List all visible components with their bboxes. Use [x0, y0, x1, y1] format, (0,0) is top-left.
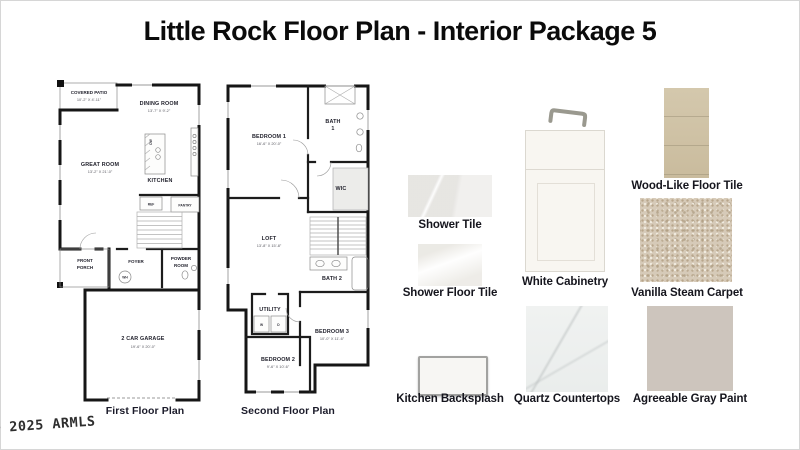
first-floor-plan-svg: COVERED PATIO 10'-2" X 4'-11" DW	[52, 70, 227, 405]
water-heater: WH	[119, 271, 131, 283]
ref-label: REF	[148, 203, 155, 207]
vanilla-carpet-label: Vanilla Steam Carpet	[617, 287, 757, 299]
shower-tile-label: Shower Tile	[380, 219, 520, 231]
loft-dims: 13'-8" X 15'-8"	[257, 243, 282, 248]
pantry: PANTRY	[171, 197, 199, 212]
first-floor-plan-drawing: COVERED PATIO 10'-2" X 4'-11" DW	[52, 70, 227, 405]
agreeable-gray-label: Agreeable Gray Paint	[620, 393, 760, 405]
loft-label: LOFT	[262, 236, 277, 242]
second-floor-walls	[228, 86, 368, 392]
quartz-countertops-swatch	[526, 306, 608, 392]
powder-room-label-1: POWDER	[171, 256, 192, 261]
second-floor-plan-svg: W D BEDROOM 1 16'-6" X 20'-0" BATH 1 WIC…	[221, 70, 373, 400]
kitchen-island: DW	[145, 134, 165, 174]
bedroom1-dims: 16'-6" X 20'-0"	[257, 141, 282, 146]
cabinet-handle-icon	[546, 105, 590, 130]
first-floor-caption: First Floor Plan	[75, 405, 215, 417]
wic-label: WIC	[336, 186, 347, 192]
kitchen-counter	[191, 128, 198, 176]
utility-label: UTILITY	[259, 307, 281, 313]
foyer-label: FOYER	[128, 259, 144, 264]
kitchen-label: KITCHEN	[147, 178, 172, 184]
shower-tile-swatch	[408, 175, 492, 217]
quartz-countertops-label: Quartz Countertops	[497, 393, 637, 405]
garage-label: 2 CAR GARAGE	[121, 336, 164, 342]
kitchen-backsplash-swatch	[418, 356, 488, 396]
bath2-fixtures	[310, 257, 368, 290]
shower-floor-tile-label: Shower Floor Tile	[380, 287, 520, 299]
first-floor-stairs	[137, 212, 182, 248]
page-title: Little Rock Floor Plan - Interior Packag…	[0, 16, 800, 47]
wood-floor-tile-label: Wood-Like Floor Tile	[617, 180, 757, 192]
cabinet-drawer-line	[526, 169, 604, 170]
dining-room-label: DINING ROOM	[140, 101, 179, 107]
white-cabinetry-label: White Cabinetry	[495, 276, 635, 288]
bedroom3-label: BEDROOM 3	[315, 329, 349, 335]
great-room-label: GREAT ROOM	[81, 162, 120, 168]
pantry-label: PANTRY	[178, 204, 192, 208]
agreeable-gray-swatch	[647, 306, 733, 391]
front-porch: FRONT PORCH	[60, 233, 109, 287]
refrigerator: REF	[140, 197, 162, 210]
wh-label: WH	[122, 276, 128, 280]
second-floor-caption: Second Floor Plan	[218, 405, 358, 417]
bedroom3-dims: 10'-0" X 11'-6"	[320, 336, 345, 341]
covered-patio-dims: 10'-2" X 4'-11"	[77, 97, 102, 102]
dining-room-dims: 13'-7" X 9'-2"	[148, 108, 171, 113]
bedroom2-dims: 9'-6" X 10'-6"	[267, 364, 290, 369]
first-floor-walls	[57, 85, 199, 400]
bath2-label: BATH 2	[322, 276, 342, 282]
covered-patio-room: COVERED PATIO 10'-2" X 4'-11"	[57, 80, 117, 110]
cabinet-door	[537, 183, 595, 261]
window-marks-2	[228, 86, 368, 392]
bath1-label-1: BATH	[325, 119, 340, 125]
armls-watermark: © 2025 ARMLS	[0, 413, 96, 436]
white-cabinetry-swatch	[525, 130, 605, 272]
powder-room-label-2: ROOM	[174, 263, 188, 268]
dishwasher-label: DW	[149, 138, 153, 144]
bedroom1-label: BEDROOM 1	[252, 134, 286, 140]
bath1-label-2: 1	[331, 126, 334, 132]
front-porch-label-1: FRONT	[77, 258, 93, 263]
second-floor-stairs	[310, 217, 366, 255]
washer-dryer: W D	[254, 316, 286, 332]
garage-dims: 19'-6" X 20'-0"	[131, 344, 156, 349]
second-floor-plan-drawing: W D BEDROOM 1 16'-6" X 20'-0" BATH 1 WIC…	[221, 70, 373, 400]
bedroom2-label: BEDROOM 2	[261, 357, 295, 363]
screenshot-root: { "title": "Little Rock Floor Plan - Int…	[0, 0, 800, 450]
covered-patio-label: COVERED PATIO	[71, 90, 108, 95]
vanilla-carpet-swatch	[640, 198, 732, 282]
great-room-dims: 13'-2" X 21'-0"	[88, 169, 113, 174]
front-porch-label-2: PORCH	[77, 265, 93, 270]
shower-floor-tile-swatch	[418, 244, 482, 286]
wood-floor-tile-swatch	[664, 88, 709, 178]
